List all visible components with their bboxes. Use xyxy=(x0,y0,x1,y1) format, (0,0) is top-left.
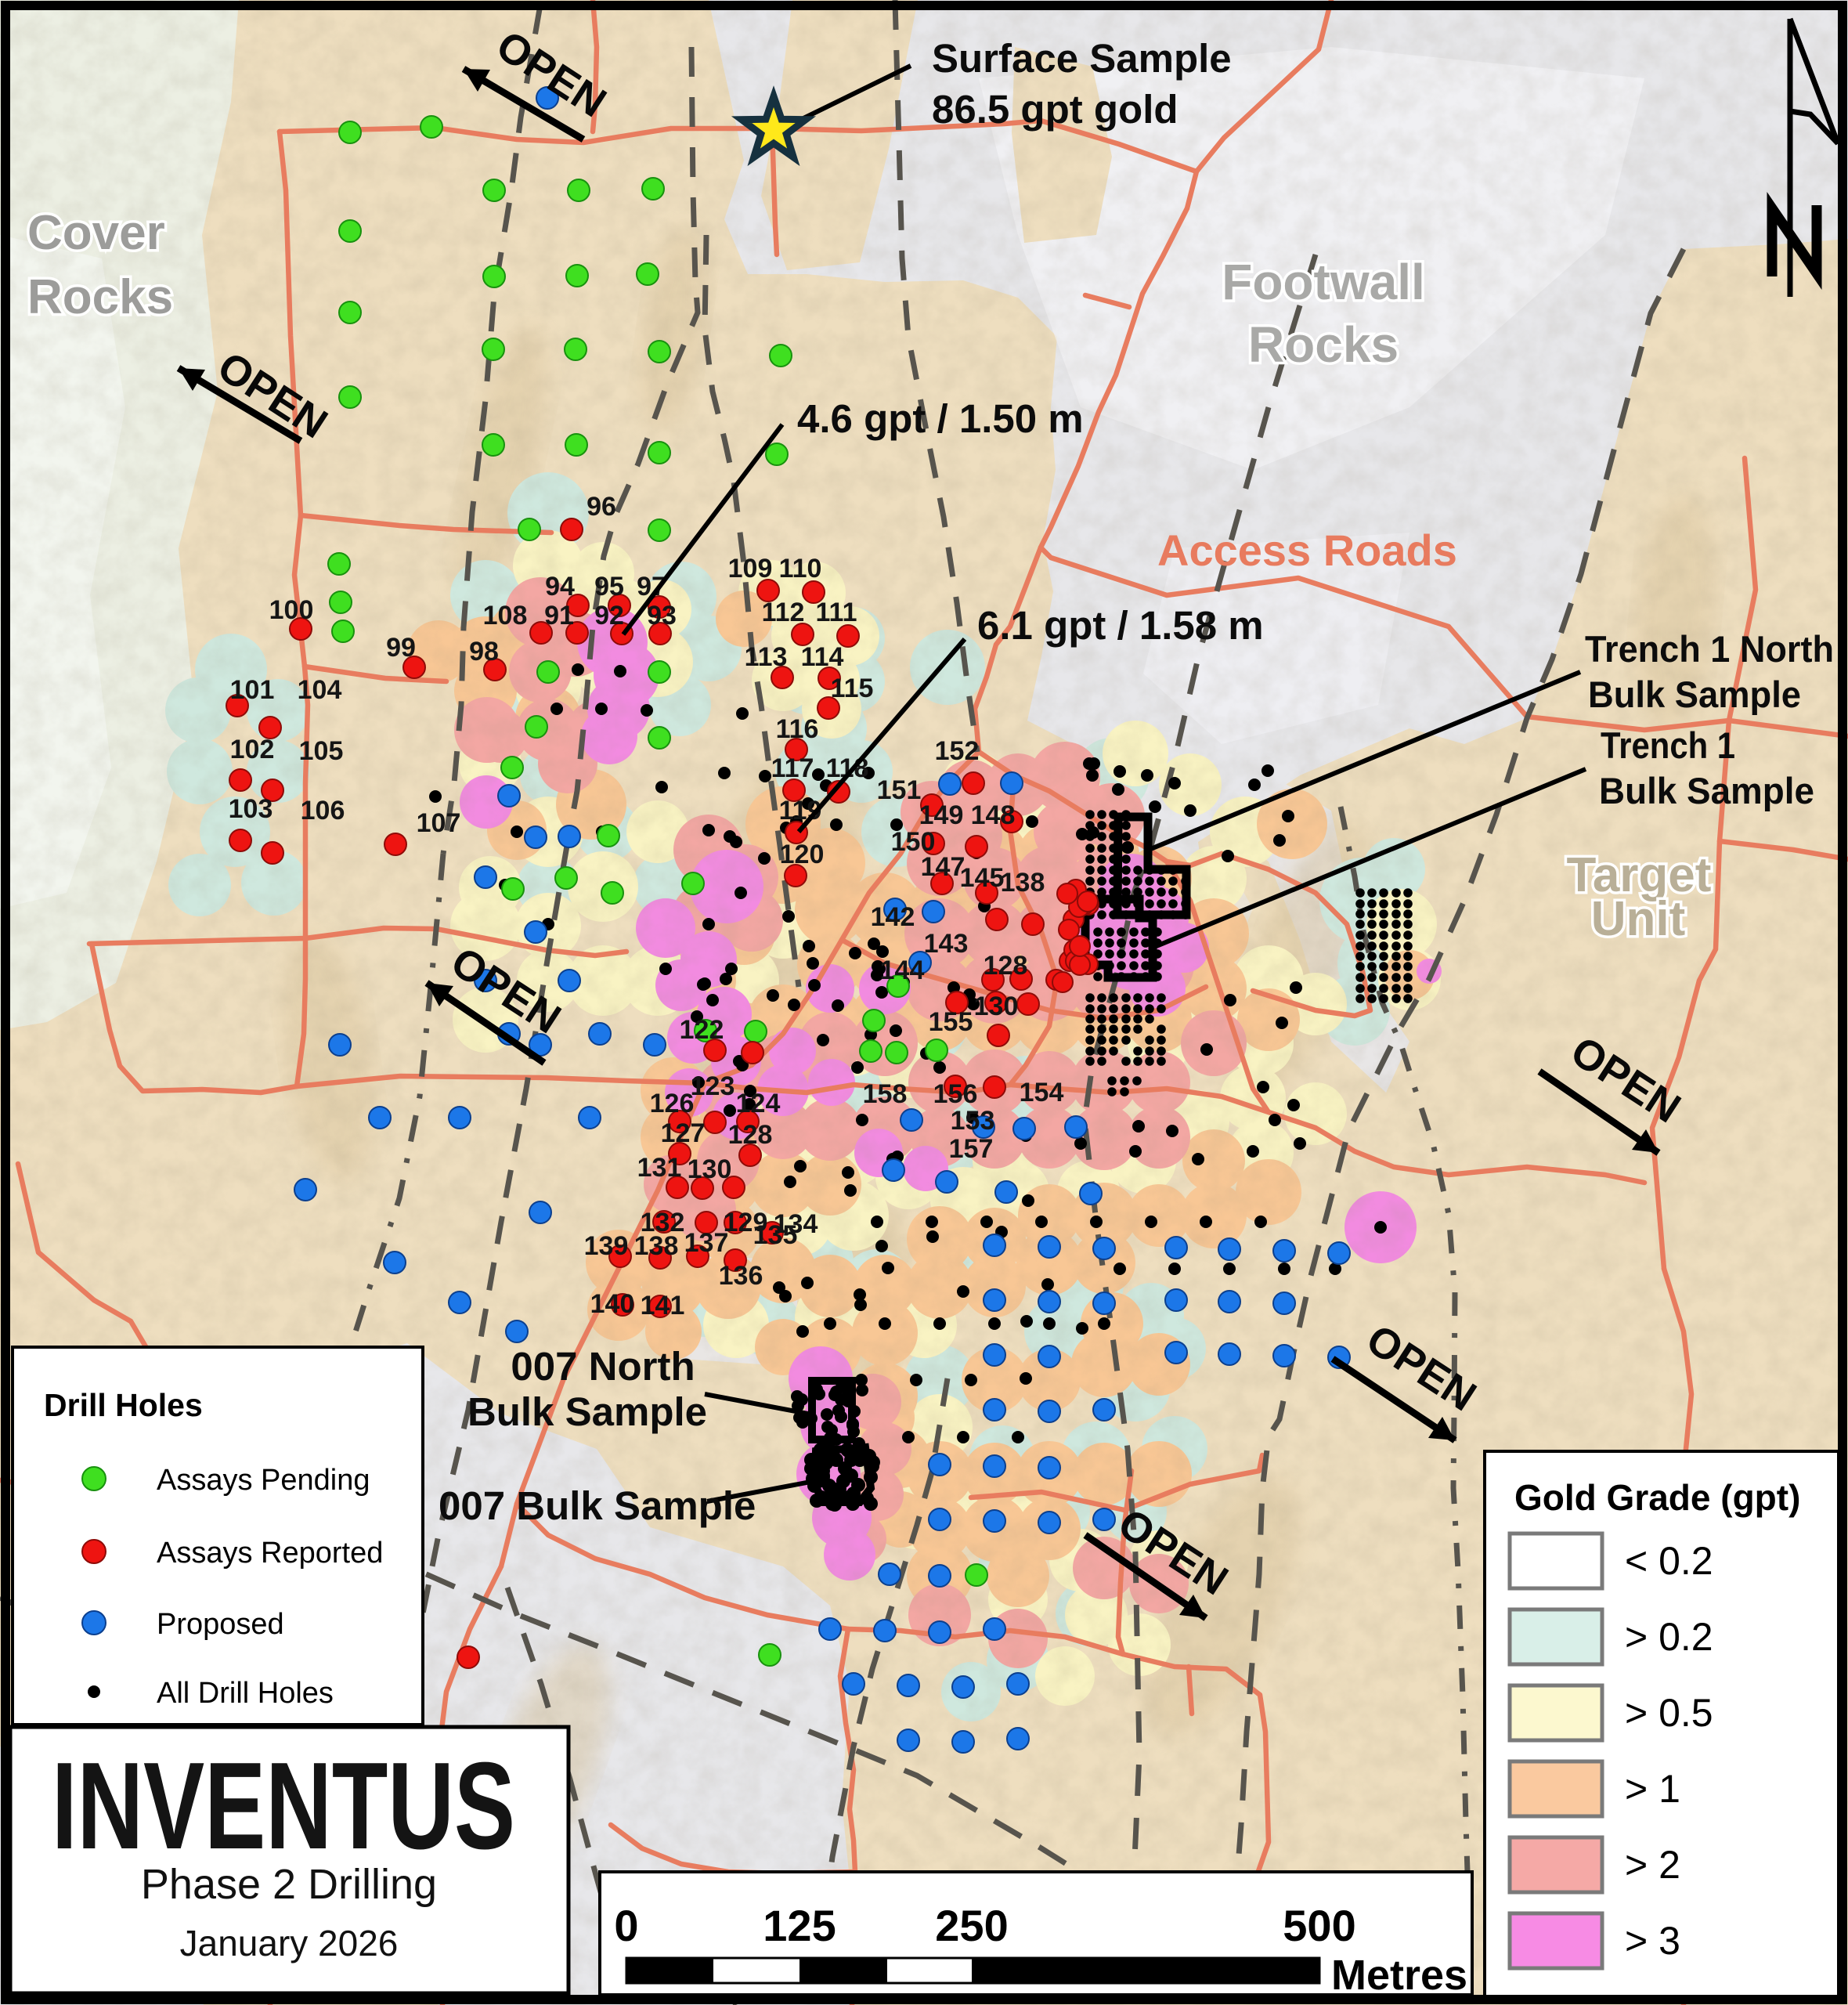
svg-text:Trench 1: Trench 1 xyxy=(1601,724,1735,766)
svg-text:250: 250 xyxy=(935,1901,1008,1950)
svg-text:86.5 gpt gold: 86.5 gpt gold xyxy=(932,87,1178,132)
svg-text:127: 127 xyxy=(661,1118,706,1148)
svg-text:Surface Sample: Surface Sample xyxy=(932,36,1232,81)
svg-text:149: 149 xyxy=(919,800,964,830)
svg-text:140: 140 xyxy=(590,1289,635,1319)
svg-text:144: 144 xyxy=(880,956,925,985)
svg-text:111: 111 xyxy=(816,598,857,627)
svg-text:Footwall: Footwall xyxy=(1222,254,1425,310)
svg-text:Bulk Sample: Bulk Sample xyxy=(1599,770,1814,811)
svg-text:Assays Reported: Assays Reported xyxy=(157,1537,383,1570)
svg-text:128: 128 xyxy=(728,1120,773,1150)
svg-text:131: 131 xyxy=(637,1153,682,1183)
svg-text:112: 112 xyxy=(762,598,805,627)
svg-text:142: 142 xyxy=(871,902,915,932)
svg-text:157: 157 xyxy=(949,1134,994,1164)
svg-text:Bulk Sample: Bulk Sample xyxy=(467,1389,707,1434)
svg-text:153: 153 xyxy=(951,1106,995,1136)
svg-text:147: 147 xyxy=(921,852,966,882)
svg-text:007 North: 007 North xyxy=(511,1344,695,1389)
svg-text:104: 104 xyxy=(298,675,342,705)
svg-text:Rocks: Rocks xyxy=(1248,316,1399,373)
svg-text:113: 113 xyxy=(745,642,788,672)
svg-text:102: 102 xyxy=(230,735,275,764)
svg-text:130: 130 xyxy=(974,992,1019,1021)
svg-text:91: 91 xyxy=(544,601,574,630)
svg-text:123: 123 xyxy=(691,1071,735,1101)
svg-text:117: 117 xyxy=(771,753,814,783)
svg-text:126: 126 xyxy=(650,1089,695,1118)
svg-text:007 Bulk Sample: 007 Bulk Sample xyxy=(439,1483,756,1528)
svg-text:115: 115 xyxy=(831,674,874,703)
svg-text:> 2: > 2 xyxy=(1625,1843,1680,1887)
svg-text:106: 106 xyxy=(301,796,345,825)
svg-text:116: 116 xyxy=(776,714,819,744)
svg-text:128: 128 xyxy=(984,951,1028,981)
svg-text:> 0.5: > 0.5 xyxy=(1625,1691,1713,1735)
svg-text:152: 152 xyxy=(935,736,980,766)
svg-text:125: 125 xyxy=(763,1901,836,1950)
svg-text:145: 145 xyxy=(960,863,1005,893)
svg-text:109: 109 xyxy=(728,554,773,583)
svg-text:Proposed: Proposed xyxy=(157,1608,284,1641)
svg-text:INVENTUS: INVENTUS xyxy=(52,1737,515,1875)
svg-text:96: 96 xyxy=(587,492,616,522)
svg-text:101: 101 xyxy=(230,675,275,705)
svg-text:155: 155 xyxy=(929,1007,973,1037)
svg-text:Phase 2 Drilling: Phase 2 Drilling xyxy=(141,1861,437,1908)
svg-text:93: 93 xyxy=(647,601,677,630)
svg-text:138: 138 xyxy=(1001,868,1045,898)
svg-text:135: 135 xyxy=(753,1220,798,1250)
svg-text:124: 124 xyxy=(736,1089,781,1118)
svg-text:137: 137 xyxy=(684,1228,729,1258)
svg-text:Gold Grade (gpt): Gold Grade (gpt) xyxy=(1514,1477,1800,1518)
svg-text:Trench 1 North: Trench 1 North xyxy=(1585,628,1834,670)
svg-text:143: 143 xyxy=(924,929,969,959)
svg-text:> 3: > 3 xyxy=(1625,1919,1680,1963)
svg-text:122: 122 xyxy=(680,1015,724,1045)
svg-text:99: 99 xyxy=(386,633,416,663)
svg-text:94: 94 xyxy=(545,572,575,601)
svg-text:95: 95 xyxy=(594,572,624,601)
svg-text:114: 114 xyxy=(801,642,844,672)
svg-text:156: 156 xyxy=(933,1079,978,1109)
svg-text:0: 0 xyxy=(614,1901,638,1950)
svg-text:98: 98 xyxy=(469,637,499,667)
svg-text:Bulk Sample: Bulk Sample xyxy=(1588,674,1801,715)
svg-text:Unit: Unit xyxy=(1591,892,1686,946)
svg-text:January 2026: January 2026 xyxy=(180,1923,399,1963)
svg-text:138: 138 xyxy=(634,1231,679,1261)
svg-text:120: 120 xyxy=(780,840,825,869)
svg-text:< 0.2: < 0.2 xyxy=(1625,1539,1713,1583)
svg-text:108: 108 xyxy=(483,601,528,630)
svg-text:148: 148 xyxy=(971,800,1016,830)
svg-text:Rocks: Rocks xyxy=(27,270,173,324)
svg-text:103: 103 xyxy=(229,794,273,824)
svg-text:6.1 gpt / 1.58 m: 6.1 gpt / 1.58 m xyxy=(977,603,1264,648)
svg-text:> 1: > 1 xyxy=(1625,1767,1680,1811)
svg-text:105: 105 xyxy=(299,736,344,766)
svg-text:Cover: Cover xyxy=(27,206,165,260)
svg-text:130: 130 xyxy=(688,1154,732,1184)
svg-text:151: 151 xyxy=(877,775,922,805)
svg-text:100: 100 xyxy=(269,595,314,625)
svg-text:4.6 gpt / 1.50 m: 4.6 gpt / 1.50 m xyxy=(797,396,1084,441)
svg-text:Drill Holes: Drill Holes xyxy=(44,1387,203,1423)
svg-text:107: 107 xyxy=(417,808,461,838)
svg-text:92: 92 xyxy=(594,601,624,630)
svg-text:Assays Pending: Assays Pending xyxy=(157,1464,370,1497)
svg-text:500: 500 xyxy=(1283,1901,1355,1950)
svg-text:136: 136 xyxy=(719,1261,763,1291)
svg-text:139: 139 xyxy=(584,1231,629,1261)
svg-text:> 0.2: > 0.2 xyxy=(1625,1615,1713,1659)
svg-text:Metres: Metres xyxy=(1331,1952,1467,1999)
svg-text:154: 154 xyxy=(1020,1078,1064,1107)
svg-text:158: 158 xyxy=(863,1079,908,1109)
svg-text:Access Roads: Access Roads xyxy=(1157,526,1457,575)
svg-text:141: 141 xyxy=(641,1291,685,1320)
svg-text:All Drill Holes: All Drill Holes xyxy=(157,1677,334,1710)
svg-text:110: 110 xyxy=(779,554,822,583)
